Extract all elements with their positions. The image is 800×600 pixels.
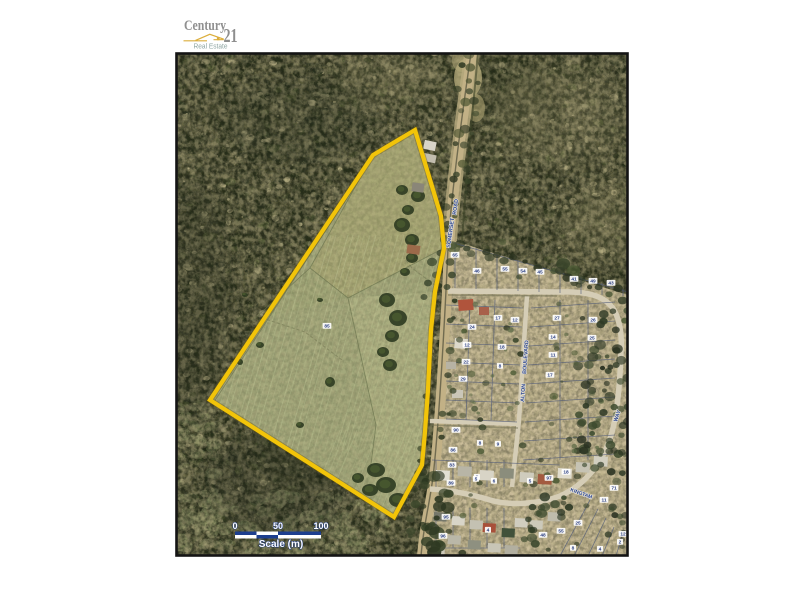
svg-text:8: 8 [499,364,502,370]
svg-text:ALTON: ALTON [520,384,527,403]
svg-text:6: 6 [493,479,496,485]
svg-text:11: 11 [601,498,606,504]
svg-text:89: 89 [448,481,454,487]
svg-text:55: 55 [558,529,564,535]
svg-text:55: 55 [502,267,508,273]
svg-text:8: 8 [479,441,482,447]
svg-text:5: 5 [529,479,532,485]
svg-text:43: 43 [608,281,614,287]
svg-text:4: 4 [487,528,490,534]
svg-text:Real Estate: Real Estate [194,44,228,51]
svg-text:0: 0 [232,521,237,531]
svg-text:14: 14 [550,335,556,341]
svg-text:Scale (m): Scale (m) [259,539,303,550]
svg-text:5: 5 [475,477,478,483]
svg-text:18: 18 [563,470,569,476]
svg-text:25: 25 [575,521,581,527]
svg-text:11: 11 [550,353,555,359]
svg-text:29: 29 [460,377,466,383]
svg-text:48: 48 [540,533,546,539]
svg-text:12: 12 [464,343,470,349]
svg-text:90: 90 [453,428,459,434]
svg-text:97: 97 [546,476,552,482]
svg-text:100: 100 [313,521,328,531]
svg-text:50: 50 [273,521,283,531]
svg-text:25: 25 [589,336,595,342]
svg-text:95: 95 [443,515,449,521]
svg-text:22: 22 [463,360,469,366]
svg-text:83: 83 [449,463,455,469]
svg-text:17: 17 [547,373,553,379]
svg-text:17: 17 [495,316,501,322]
svg-text:26: 26 [590,318,596,324]
svg-text:96: 96 [440,534,446,540]
svg-text:65: 65 [452,253,458,259]
svg-text:27: 27 [554,316,560,322]
svg-text:18: 18 [499,345,505,351]
svg-text:12: 12 [620,532,626,538]
svg-text:46: 46 [474,269,480,275]
svg-text:41: 41 [571,277,577,283]
svg-text:24: 24 [469,325,475,331]
svg-text:9: 9 [497,442,500,448]
svg-text:12: 12 [512,318,518,324]
svg-text:2: 2 [619,540,622,546]
svg-text:86: 86 [450,448,456,454]
svg-text:45: 45 [537,270,543,276]
svg-text:85: 85 [324,324,330,330]
svg-text:4: 4 [599,547,602,553]
svg-text:8: 8 [572,546,575,552]
svg-text:71: 71 [611,486,617,492]
svg-text:Century: Century [184,18,227,34]
svg-text:54: 54 [520,269,526,275]
svg-text:49: 49 [590,279,596,285]
